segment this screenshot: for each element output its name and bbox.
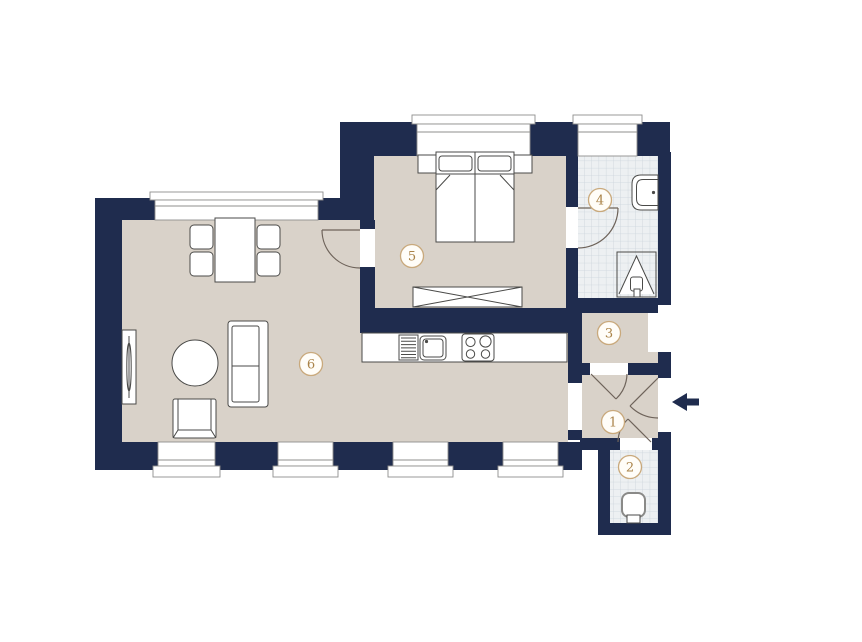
chair-icon bbox=[257, 225, 280, 249]
entrance-arrow-icon bbox=[672, 393, 699, 411]
window-bathroom bbox=[578, 124, 637, 156]
room-number-3: 3 bbox=[605, 327, 613, 342]
wall-wc-left bbox=[598, 440, 610, 535]
chair-icon bbox=[190, 225, 213, 249]
coffee-table-icon bbox=[172, 340, 218, 386]
window-bottom-2 bbox=[278, 442, 333, 466]
nightstand-left-icon bbox=[418, 155, 436, 173]
window-sill bbox=[150, 192, 323, 200]
opening-living-bedroom bbox=[360, 229, 375, 267]
room-label-4: 4 bbox=[589, 189, 612, 212]
floor-plan: 1 2 3 4 5 6 bbox=[0, 0, 862, 642]
window-living-top bbox=[155, 200, 318, 220]
wall-right-upper bbox=[658, 152, 671, 305]
dining-table-icon bbox=[215, 218, 255, 282]
opening-hall-wc bbox=[620, 438, 652, 450]
floor-plan-page: 1 2 3 4 5 6 bbox=[0, 0, 862, 642]
opening-storage-hall bbox=[590, 363, 628, 375]
window-sill bbox=[412, 115, 535, 124]
room-number-6: 6 bbox=[307, 358, 315, 373]
window-bottom-4 bbox=[503, 442, 558, 466]
room-label-1: 1 bbox=[602, 411, 625, 434]
double-bed-icon bbox=[436, 152, 514, 242]
opening-bedroom-bathroom bbox=[566, 207, 578, 248]
room-label-5: 5 bbox=[401, 245, 424, 268]
room-label-3: 3 bbox=[598, 322, 621, 345]
wall-bedroom-kitchen bbox=[374, 308, 582, 333]
window-sill bbox=[498, 466, 563, 477]
opening-living-hall-passage bbox=[568, 383, 582, 430]
washbasin-icon bbox=[632, 175, 658, 210]
room-number-5: 5 bbox=[408, 250, 416, 265]
room-number-1: 1 bbox=[609, 416, 617, 431]
window-sill bbox=[573, 115, 642, 124]
window-sill bbox=[388, 466, 453, 477]
sofa-icon bbox=[228, 321, 268, 407]
wall-left bbox=[95, 198, 122, 470]
kitchen-furniture bbox=[362, 333, 567, 362]
opening-entrance bbox=[658, 378, 671, 432]
window-bottom-3 bbox=[393, 442, 448, 466]
chair-icon bbox=[257, 252, 280, 276]
kitchen-sink-icon bbox=[399, 335, 446, 360]
window-bottom-1 bbox=[158, 442, 215, 466]
armchair-icon bbox=[173, 399, 216, 438]
radiator-icon bbox=[122, 330, 136, 404]
room-number-4: 4 bbox=[596, 194, 604, 209]
nightstand-right-icon bbox=[514, 155, 532, 173]
stove-icon bbox=[462, 334, 494, 361]
room-label-6: 6 bbox=[300, 353, 323, 376]
window-sill bbox=[153, 466, 220, 477]
window-sill bbox=[273, 466, 338, 477]
room-label-2: 2 bbox=[619, 456, 642, 479]
room-number-2: 2 bbox=[626, 461, 634, 476]
chair-icon bbox=[190, 252, 213, 276]
window-bedroom bbox=[417, 124, 530, 156]
wall-wc-bottom bbox=[598, 523, 671, 535]
wardrobe-icon bbox=[413, 287, 522, 307]
